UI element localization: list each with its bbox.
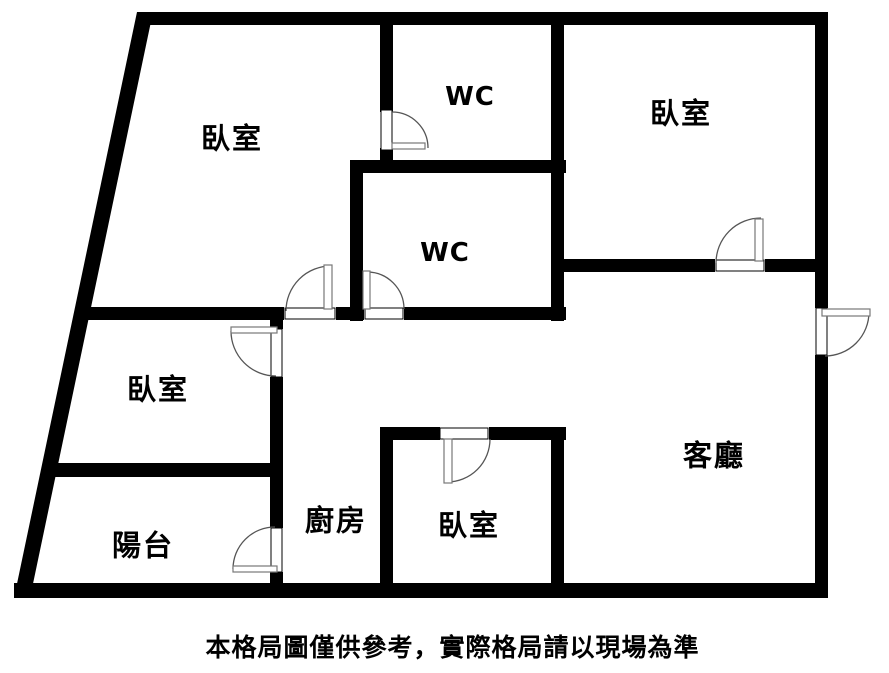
door-arc xyxy=(825,312,869,356)
wall-bedroom-ml-right-a xyxy=(270,307,283,329)
door-leaf xyxy=(755,219,763,261)
door-bedroom-top-left xyxy=(285,265,335,319)
room-label-bedroom-top-right: 臥室 xyxy=(650,100,712,129)
door-threshold xyxy=(365,308,403,319)
room-label-wc-lower: WC xyxy=(420,240,470,266)
wall-left-slanted xyxy=(14,12,153,598)
door-balcony xyxy=(233,527,282,572)
room-label-bedroom-mid-left: 臥室 xyxy=(127,376,189,405)
wall-wc-lower-left xyxy=(350,160,363,321)
door-threshold xyxy=(716,260,764,271)
wall-hall-b xyxy=(336,307,364,320)
door-entrance xyxy=(816,308,870,356)
wall-bedroom-ml-right-b xyxy=(270,377,283,528)
wall-center-vertical xyxy=(551,12,564,321)
door-arc xyxy=(231,331,276,376)
room-label-kitchen: 廚房 xyxy=(305,507,367,536)
door-wc-upper xyxy=(381,110,428,150)
door-threshold xyxy=(440,428,488,439)
door-threshold xyxy=(285,308,335,319)
disclaimer-caption: 本格局圖僅供參考，實際格局請以現場為準 xyxy=(0,628,889,664)
wall-bottom xyxy=(14,583,828,598)
door-threshold xyxy=(381,110,392,150)
door-arc xyxy=(233,527,275,569)
door-bedroom-bottom xyxy=(440,428,490,483)
room-label-balcony: 陽台 xyxy=(112,532,174,561)
wall-bedroom-b-right xyxy=(551,427,564,587)
wall-right-lower xyxy=(815,355,828,598)
wall-top xyxy=(137,12,828,25)
wall-bedroom-tr-bottom-b xyxy=(765,259,828,272)
door-leaf xyxy=(822,309,870,316)
door-wc-lower xyxy=(363,271,404,319)
door-arc xyxy=(716,218,761,263)
wall-hall-c xyxy=(404,307,566,320)
door-arc xyxy=(367,272,404,309)
room-label-wc-upper: WC xyxy=(445,84,495,110)
wall-wc-upper-left-a xyxy=(380,20,393,112)
floor-plan: 臥室 WC 臥室 WC 臥室 客廳 廚房 臥室 陽台 本格局圖僅供參考，實際格局… xyxy=(0,0,889,673)
wall-hall-a xyxy=(80,307,284,320)
wall-bedroom-b-top-a xyxy=(380,427,440,440)
door-leaf xyxy=(231,327,277,333)
door-leaf xyxy=(392,143,425,149)
wall-bedroom-tr-bottom-a xyxy=(551,259,715,272)
door-leaf xyxy=(324,265,332,309)
wall-bedroom-b-left xyxy=(380,427,393,587)
door-leaf xyxy=(444,439,452,483)
door-arc xyxy=(447,439,490,482)
wall-wc-divider xyxy=(350,160,566,173)
door-leaf xyxy=(363,271,370,309)
door-bedroom-mid-left xyxy=(231,327,282,377)
door-leaf xyxy=(233,566,277,572)
door-threshold xyxy=(271,329,282,377)
door-bedroom-top-right xyxy=(716,218,764,271)
room-label-bedroom-top-left: 臥室 xyxy=(201,125,263,154)
room-label-living-room: 客廳 xyxy=(683,442,745,471)
wall-balcony-divider xyxy=(52,463,283,477)
room-label-bedroom-bottom: 臥室 xyxy=(438,512,500,541)
wall-bedroom-ml-right-c xyxy=(270,572,283,585)
